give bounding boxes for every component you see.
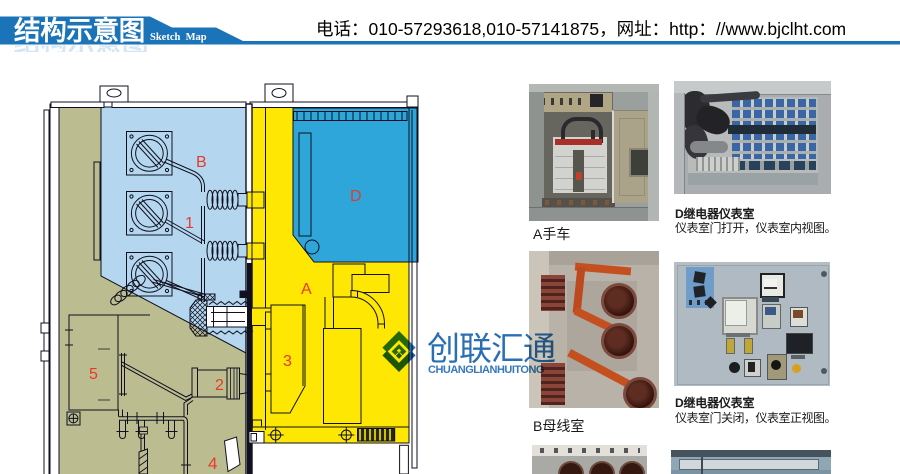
svg-text:创联汇通: 创联汇通 <box>427 330 555 367</box>
svg-text:A: A <box>301 281 312 298</box>
svg-text:1: 1 <box>185 215 194 232</box>
svg-text:CHUANGLIANHUITONG: CHUANGLIANHUITONG <box>428 364 544 376</box>
svg-text:B: B <box>196 154 207 171</box>
svg-text:D: D <box>350 188 362 205</box>
svg-text:2: 2 <box>215 377 224 394</box>
svg-text:3: 3 <box>283 353 292 370</box>
svg-text:5: 5 <box>89 366 98 383</box>
svg-text:4: 4 <box>208 454 217 473</box>
